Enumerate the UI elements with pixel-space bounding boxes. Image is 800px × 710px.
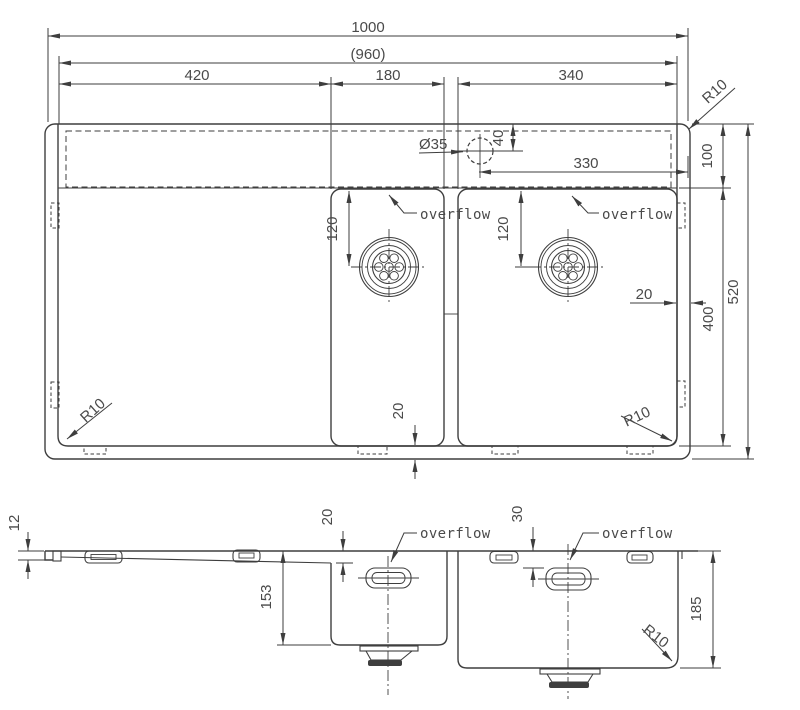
dim-overall-width-text: 1000 [351, 19, 384, 36]
dim-bowl-depth-text: 400 [700, 306, 717, 331]
dim-overflow-drop-text: 30 [509, 506, 526, 523]
dim-faucet-to-edge-text: 330 [573, 155, 598, 172]
dim-drainboard-width-text: 420 [184, 67, 209, 84]
dim-large-bowl-width-text: 340 [558, 67, 583, 84]
dim-small-bowl-depth-text: 153 [258, 584, 275, 609]
dim-faucet-offset-text: 40 [490, 130, 507, 147]
dim-inner-width-text: (960) [350, 46, 385, 63]
dim-drainboard-drop-text: 20 [319, 509, 336, 526]
dim-right-rim-text: 20 [636, 286, 653, 303]
dim-overall-depth-text: 520 [725, 279, 742, 304]
dim-large-drain-offset-text: 120 [495, 216, 512, 241]
drawing-page: 1000 (960) 420 180 340 Ø35 40 [0, 0, 800, 710]
dim-bottom-rim-text: 20 [390, 403, 407, 420]
dim-deck-depth-text: 100 [699, 143, 716, 168]
overflow-large-section-text: overflow [602, 526, 673, 542]
dim-small-drain-offset-text: 120 [324, 216, 341, 241]
dim-small-bowl-width-text: 180 [375, 67, 400, 84]
dim-front-lip-text: 12 [6, 515, 23, 532]
overflow-small-text: overflow [420, 207, 491, 223]
overflow-small-section-text: overflow [420, 526, 491, 542]
dim-faucet-dia-text: Ø35 [419, 136, 447, 153]
dim-large-bowl-depth-text: 185 [688, 596, 705, 621]
overflow-large-text: overflow [602, 207, 673, 223]
sink-technical-drawing: 1000 (960) 420 180 340 Ø35 40 [0, 0, 800, 710]
background [0, 0, 800, 710]
